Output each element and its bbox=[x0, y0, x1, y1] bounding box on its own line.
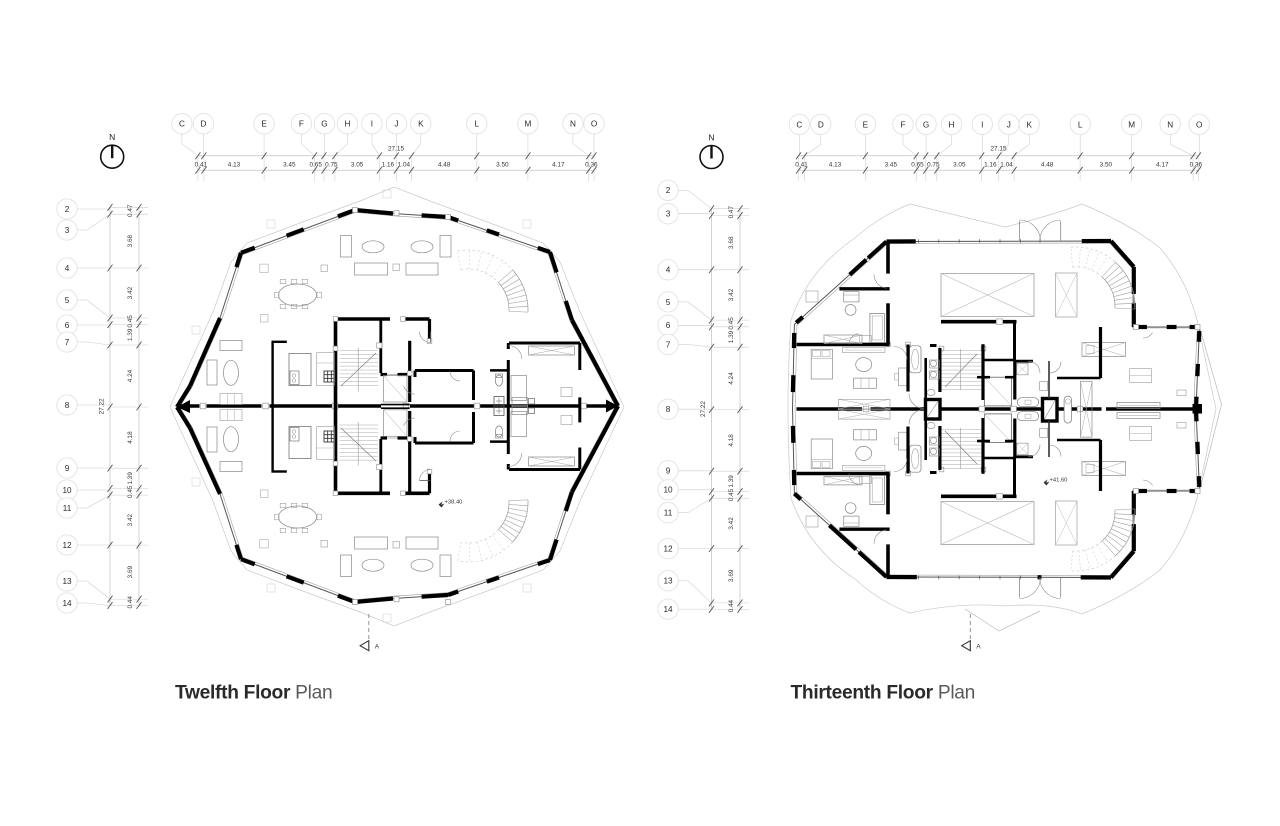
svg-text:+41.60: +41.60 bbox=[1050, 478, 1068, 484]
svg-text:27.22: 27.22 bbox=[98, 398, 105, 414]
svg-text:0.44: 0.44 bbox=[127, 596, 134, 609]
svg-text:4: 4 bbox=[666, 266, 671, 275]
svg-text:4.18: 4.18 bbox=[728, 434, 735, 447]
svg-text:3.69: 3.69 bbox=[728, 569, 735, 582]
svg-text:C: C bbox=[179, 120, 185, 129]
svg-text:J: J bbox=[1007, 120, 1011, 129]
svg-text:0.41: 0.41 bbox=[795, 161, 808, 168]
svg-text:6: 6 bbox=[666, 321, 671, 330]
svg-text:0.45: 0.45 bbox=[728, 317, 735, 330]
svg-text:M: M bbox=[1128, 120, 1135, 129]
svg-text:12: 12 bbox=[663, 545, 673, 554]
svg-text:11: 11 bbox=[664, 509, 673, 518]
svg-text:0.65: 0.65 bbox=[911, 161, 924, 168]
svg-text:0.36: 0.36 bbox=[1190, 161, 1203, 168]
svg-text:0.65: 0.65 bbox=[309, 161, 322, 168]
svg-text:3: 3 bbox=[666, 210, 671, 219]
svg-text:3.45: 3.45 bbox=[885, 161, 898, 168]
svg-text:5: 5 bbox=[65, 296, 70, 305]
svg-text:8: 8 bbox=[666, 405, 671, 414]
svg-text:F: F bbox=[299, 120, 304, 129]
svg-text:Thirteenth Floor Plan: Thirteenth Floor Plan bbox=[791, 683, 976, 704]
svg-text:3.42: 3.42 bbox=[728, 288, 735, 301]
svg-text:4.17: 4.17 bbox=[1156, 161, 1169, 168]
svg-text:3.42: 3.42 bbox=[127, 286, 134, 299]
svg-text:1.39: 1.39 bbox=[728, 475, 735, 488]
svg-text:Twelfth Floor Plan: Twelfth Floor Plan bbox=[175, 683, 332, 704]
svg-text:27.22: 27.22 bbox=[700, 401, 707, 417]
svg-text:1.16: 1.16 bbox=[382, 161, 395, 168]
svg-text:14: 14 bbox=[663, 605, 673, 614]
svg-text:F: F bbox=[900, 120, 905, 129]
svg-text:0.75: 0.75 bbox=[325, 161, 338, 168]
svg-text:9: 9 bbox=[65, 464, 70, 473]
svg-text:D: D bbox=[201, 120, 207, 129]
svg-text:D: D bbox=[818, 120, 824, 129]
svg-text:+38.40: +38.40 bbox=[445, 500, 463, 506]
svg-text:2: 2 bbox=[666, 186, 671, 195]
svg-text:14: 14 bbox=[62, 599, 72, 608]
svg-text:13: 13 bbox=[62, 577, 72, 586]
svg-text:11: 11 bbox=[63, 504, 72, 513]
svg-text:E: E bbox=[261, 120, 267, 129]
svg-text:1.39: 1.39 bbox=[127, 472, 134, 485]
svg-text:0.45: 0.45 bbox=[127, 485, 134, 498]
svg-text:0.45: 0.45 bbox=[728, 488, 735, 501]
svg-text:G: G bbox=[923, 120, 929, 129]
svg-text:1.39: 1.39 bbox=[127, 328, 134, 341]
svg-text:0.75: 0.75 bbox=[927, 161, 940, 168]
svg-text:K: K bbox=[1026, 120, 1032, 129]
svg-text:J: J bbox=[394, 120, 398, 129]
svg-text:3.05: 3.05 bbox=[953, 161, 966, 168]
svg-text:9: 9 bbox=[666, 467, 671, 476]
svg-text:4.13: 4.13 bbox=[829, 161, 842, 168]
svg-text:4.18: 4.18 bbox=[127, 431, 134, 444]
svg-text:4: 4 bbox=[65, 264, 70, 273]
svg-text:N: N bbox=[109, 132, 115, 142]
svg-text:8: 8 bbox=[65, 401, 70, 410]
svg-text:G: G bbox=[321, 120, 327, 129]
svg-text:3.05: 3.05 bbox=[351, 161, 364, 168]
svg-text:M: M bbox=[524, 120, 531, 129]
svg-text:3.42: 3.42 bbox=[728, 517, 735, 530]
svg-text:1.39: 1.39 bbox=[728, 330, 735, 343]
svg-text:I: I bbox=[981, 120, 983, 129]
svg-text:0.44: 0.44 bbox=[728, 599, 735, 612]
svg-text:K: K bbox=[418, 120, 424, 129]
svg-text:O: O bbox=[591, 120, 597, 129]
svg-text:1.04: 1.04 bbox=[1000, 161, 1013, 168]
svg-text:0.41: 0.41 bbox=[195, 161, 208, 168]
svg-text:0.47: 0.47 bbox=[728, 206, 735, 219]
svg-text:I: I bbox=[371, 120, 373, 129]
svg-text:N: N bbox=[1167, 120, 1173, 129]
svg-text:4.48: 4.48 bbox=[1041, 161, 1054, 168]
svg-text:0.47: 0.47 bbox=[127, 204, 134, 217]
svg-text:N: N bbox=[570, 120, 576, 129]
svg-text:3.50: 3.50 bbox=[496, 161, 509, 168]
svg-text:3.45: 3.45 bbox=[283, 161, 296, 168]
svg-text:H: H bbox=[949, 120, 955, 129]
svg-text:E: E bbox=[863, 120, 869, 129]
svg-text:10: 10 bbox=[663, 486, 673, 495]
svg-text:L: L bbox=[1078, 120, 1083, 129]
svg-text:5: 5 bbox=[666, 298, 671, 307]
svg-text:1.16: 1.16 bbox=[984, 161, 997, 168]
svg-text:27.15: 27.15 bbox=[991, 146, 1007, 153]
svg-text:3.69: 3.69 bbox=[127, 565, 134, 578]
svg-text:12: 12 bbox=[62, 541, 72, 550]
svg-text:4.24: 4.24 bbox=[728, 372, 735, 385]
svg-text:7: 7 bbox=[666, 340, 671, 349]
svg-text:O: O bbox=[1196, 120, 1202, 129]
svg-text:3: 3 bbox=[65, 226, 70, 235]
svg-text:3.68: 3.68 bbox=[728, 236, 735, 249]
svg-text:3.42: 3.42 bbox=[127, 513, 134, 526]
svg-text:1.04: 1.04 bbox=[398, 161, 411, 168]
svg-text:C: C bbox=[796, 120, 802, 129]
svg-text:0.45: 0.45 bbox=[127, 315, 134, 328]
svg-text:13: 13 bbox=[663, 577, 673, 586]
svg-text:4.17: 4.17 bbox=[552, 161, 565, 168]
svg-text:27.15: 27.15 bbox=[388, 146, 404, 153]
svg-text:0.36: 0.36 bbox=[585, 161, 598, 168]
svg-text:H: H bbox=[344, 120, 350, 129]
svg-text:4.13: 4.13 bbox=[228, 161, 241, 168]
svg-text:2: 2 bbox=[65, 205, 70, 214]
svg-text:3.50: 3.50 bbox=[1100, 161, 1113, 168]
svg-text:3.68: 3.68 bbox=[127, 234, 134, 247]
svg-text:10: 10 bbox=[62, 486, 72, 495]
svg-text:4.48: 4.48 bbox=[438, 161, 451, 168]
svg-text:N: N bbox=[708, 133, 714, 143]
svg-text:6: 6 bbox=[65, 321, 70, 330]
svg-text:A: A bbox=[976, 644, 981, 651]
svg-text:A: A bbox=[375, 644, 380, 651]
svg-text:4.24: 4.24 bbox=[127, 369, 134, 382]
svg-text:L: L bbox=[475, 120, 480, 129]
svg-text:7: 7 bbox=[65, 338, 70, 347]
